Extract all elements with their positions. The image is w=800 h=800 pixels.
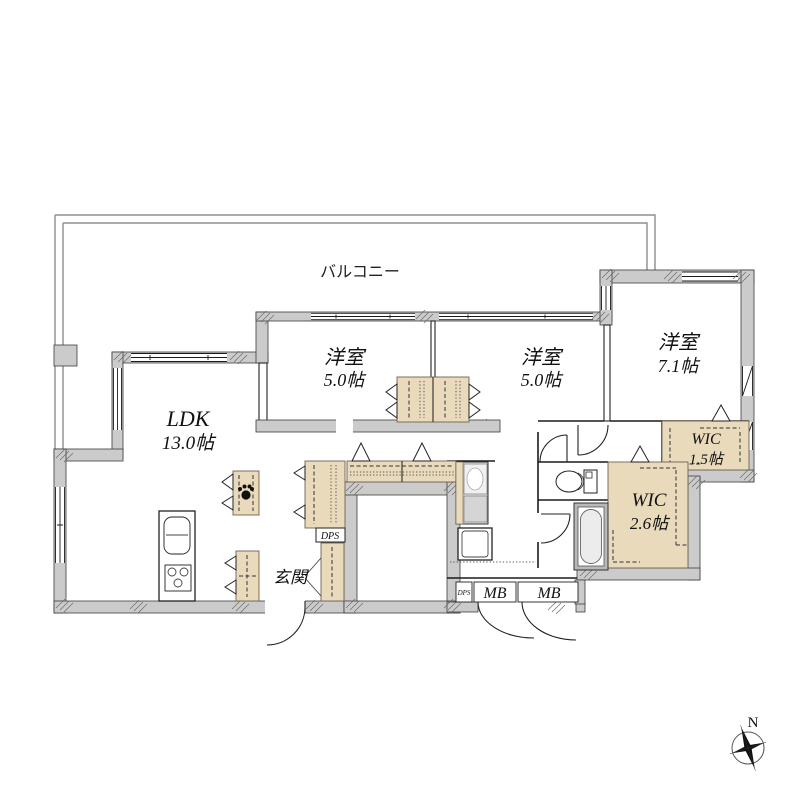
wall-ldk-bedroom1 xyxy=(259,363,267,421)
washroom-door xyxy=(540,435,567,462)
bedroom1-size: 5.0帖 xyxy=(324,370,368,390)
mb-right-door xyxy=(522,602,576,640)
entrance-door-opening xyxy=(265,601,305,614)
compass: N xyxy=(723,715,774,777)
window-ldk-southwest xyxy=(55,487,65,563)
ldk-name: LDK xyxy=(166,406,211,431)
dps-hall-label: DPS xyxy=(320,531,339,542)
kitchen-counter xyxy=(159,511,195,601)
window-ldk-north xyxy=(131,353,227,362)
ldk-label: LDK 13.0帖 xyxy=(162,406,217,454)
pet-cabinet xyxy=(222,471,259,515)
entrance-shoe-closet xyxy=(305,543,344,601)
dps-hall-box: DPS xyxy=(316,528,345,542)
window-ldk-west xyxy=(113,368,122,430)
mb-left-label: MB xyxy=(482,585,506,602)
washing-machine xyxy=(458,528,492,560)
wic1-name: WIC xyxy=(691,431,721,448)
balcony-label: バルコニー xyxy=(320,262,400,281)
washbasin-vanity xyxy=(456,462,488,524)
kitchen-stove xyxy=(165,565,191,591)
mb-right-label: MB xyxy=(536,585,560,602)
corridor-closet-north xyxy=(347,443,456,482)
void-wall-north xyxy=(344,482,460,495)
floor-plan-svg: DPS xyxy=(0,0,800,800)
window-bedroom2-north xyxy=(439,313,593,320)
ldk-size: 13.0帖 xyxy=(162,433,217,454)
toilet xyxy=(556,470,597,493)
bedroom2-size: 5.0帖 xyxy=(521,370,565,390)
bedroom3-name: 洋室 xyxy=(658,332,701,354)
bedroom3-size: 7.1帖 xyxy=(658,356,702,376)
bedroom1-name: 洋室 xyxy=(324,347,367,369)
bedroom1-label: 洋室 5.0帖 xyxy=(324,347,368,390)
bedroom2-label: 洋室 5.0帖 xyxy=(521,347,565,390)
wic2-size: 2.6帖 xyxy=(630,514,671,533)
window-bedroom3-west xyxy=(601,286,611,310)
hall-door xyxy=(578,425,608,455)
bedroom2-name: 洋室 xyxy=(521,347,564,369)
kitchen-sink xyxy=(164,517,190,554)
window-bedroom3-north xyxy=(682,272,738,282)
closet-between-bedrooms xyxy=(386,377,480,422)
void-wall-south xyxy=(344,601,460,613)
genkan-label: 玄関 xyxy=(273,568,309,587)
floor-plan-page: DPS xyxy=(0,0,800,800)
bathtub xyxy=(574,503,608,570)
dps-meter-label: DPS xyxy=(457,589,471,597)
window-bedroom1-north xyxy=(311,313,415,320)
wic2-name: WIC xyxy=(632,490,667,511)
wic1-size: 1.5帖 xyxy=(689,451,725,468)
compass-north-label: N xyxy=(748,715,759,731)
bathroom-door xyxy=(541,514,570,543)
wall-bedroom2-bedroom3 xyxy=(604,325,610,421)
bedroom3-label: 洋室 7.1帖 xyxy=(658,332,702,376)
corridor-closet-west xyxy=(294,461,345,528)
entrance-side-cabinet xyxy=(225,551,259,601)
window-bedroom3-east-1 xyxy=(742,366,753,396)
wall-bedroom1-bedroom2 xyxy=(431,321,435,378)
mb-left-door xyxy=(478,602,534,638)
void-wall-west xyxy=(344,482,357,613)
balcony-divider-panel xyxy=(54,345,77,366)
